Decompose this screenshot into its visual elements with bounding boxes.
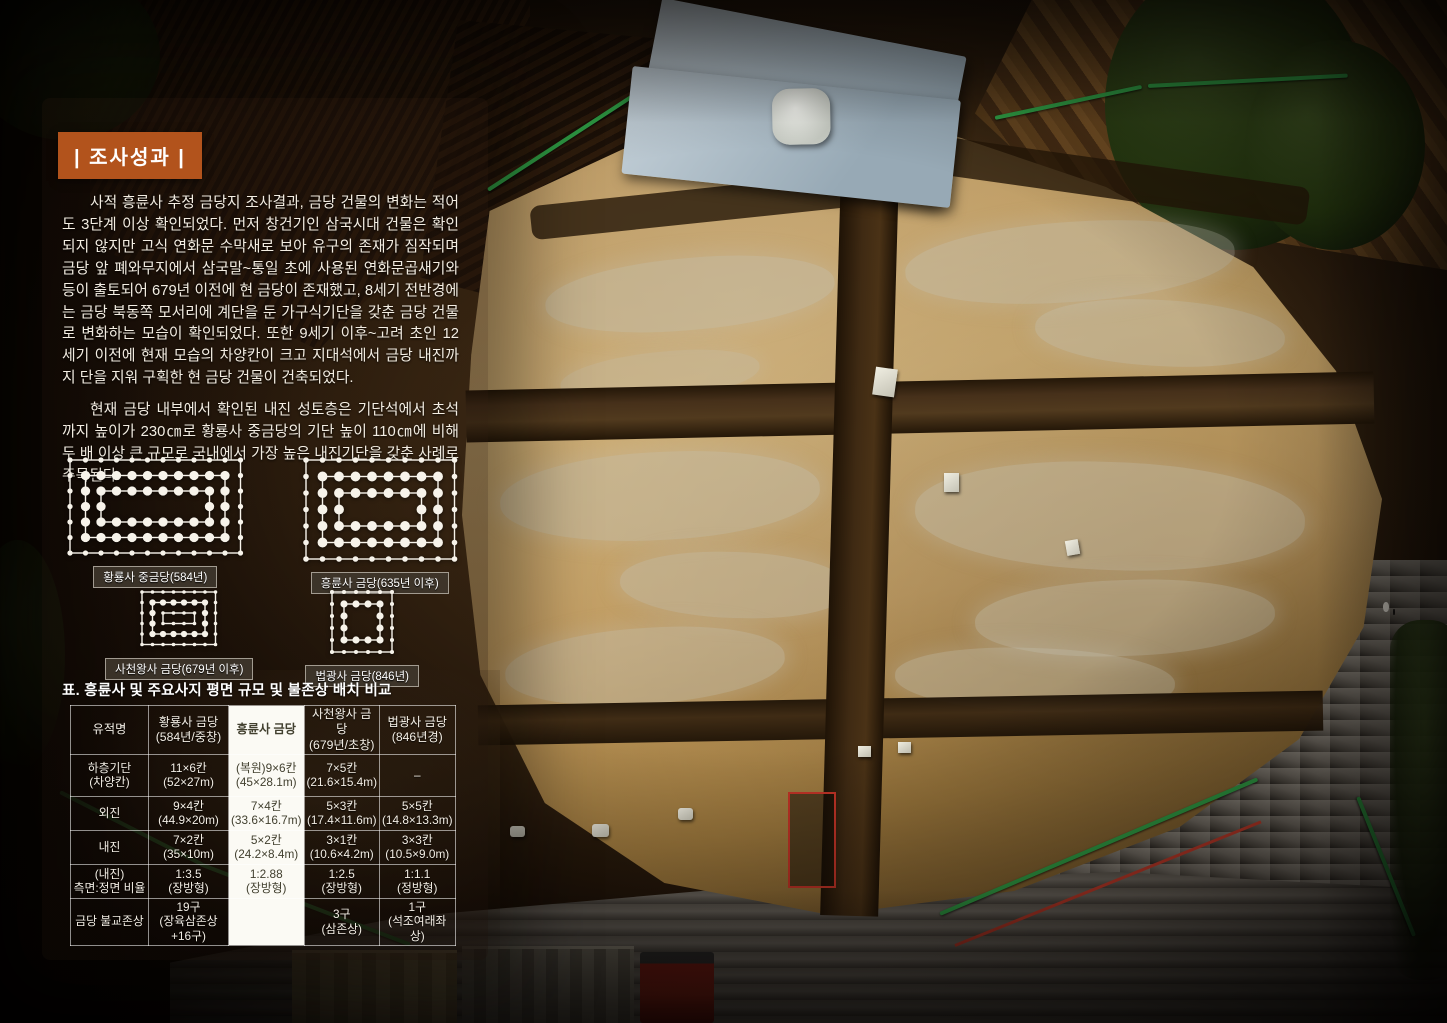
- cell-text: 황룡사 금당: [151, 715, 226, 730]
- cell-text: 7×5칸: [307, 761, 378, 776]
- table-cell: 1구(석조여래좌상): [380, 898, 456, 945]
- plan-diagrams-small: 사천왕사 금당(679년 이후) 법광사 금당(846년): [62, 584, 462, 687]
- section-title: | 조사성과 |: [58, 132, 202, 179]
- cell-text: –: [382, 768, 453, 783]
- cell-text: 7×4칸: [231, 799, 302, 814]
- cell-text: 측면:정면 비율: [73, 881, 146, 896]
- table-row: 금당 불교존상19구(장육삼존상+16구)3구(삼존상)1구(석조여래좌상): [71, 898, 456, 945]
- cell-text: 유적명: [73, 722, 146, 737]
- cell-text: 11×6칸: [151, 761, 226, 776]
- cell-text: (33.6×16.7m): [231, 813, 302, 828]
- hedge-row: [1390, 620, 1447, 980]
- table-row: 외진9×4칸(44.9×20m)7×4칸(33.6×16.7m)5×3칸(17.…: [71, 796, 456, 830]
- cell-text: (679년/초창): [307, 738, 378, 753]
- table-cell: 9×4칸(44.9×20m): [149, 796, 229, 830]
- table-cell: 1:2.88(장방형): [229, 864, 305, 898]
- cell-text: 3×3칸: [382, 833, 453, 848]
- stone-block: [1065, 539, 1080, 556]
- cell-text: 1:3.5: [151, 867, 226, 882]
- stone-block: [858, 746, 871, 757]
- cell-text: 법광사 금당: [382, 715, 453, 730]
- cell-text: (17.4×11.6m): [307, 813, 378, 828]
- cell-text: 7×2칸: [151, 833, 226, 848]
- cell-text: 사천왕사 금당: [307, 707, 378, 738]
- sandbag: [678, 808, 693, 820]
- plan-grid: [62, 452, 249, 561]
- marked-test-pit: [788, 792, 836, 888]
- cell-text: (석조여래좌상): [382, 914, 453, 943]
- cell-text: 1:1.1: [382, 867, 453, 882]
- cell-text: 3×1칸: [307, 833, 378, 848]
- cell-text: 5×5칸: [382, 799, 453, 814]
- row-header: (내진)측면:정면 비율: [71, 864, 149, 898]
- column-header: 법광사 금당(846년경): [380, 706, 456, 755]
- cell-text: (삼존상): [307, 922, 378, 937]
- table-cell: 7×4칸(33.6×16.7m): [229, 796, 305, 830]
- cell-text: 1:2.88: [231, 867, 302, 882]
- cell-text: 하층기단: [73, 761, 146, 776]
- cell-text: (장방형): [231, 881, 302, 896]
- cell-text: (정방형): [382, 881, 453, 896]
- stone-artifact: [772, 88, 831, 145]
- plan-diagram: 법광사 금당(846년): [305, 584, 419, 687]
- row-header: 하층기단(차양칸): [71, 754, 149, 796]
- plan-grid-svg: [62, 452, 249, 561]
- column-header: 흥륜사 금당: [229, 706, 305, 755]
- cell-text: 외진: [73, 806, 146, 821]
- row-header: 내진: [71, 830, 149, 864]
- plan-grid-svg: [298, 452, 463, 567]
- table-cell: 5×2칸(24.2×8.4m): [229, 830, 305, 864]
- plan-grid: [298, 452, 463, 567]
- cell-text: (846년경): [382, 730, 453, 745]
- cell-text: (10.6×4.2m): [307, 847, 378, 862]
- cell-text: (차양칸): [73, 775, 146, 790]
- cell-text: (44.9×20m): [151, 813, 226, 828]
- table-row: 내진7×2칸(35×10m)5×2칸(24.2×8.4m)3×1칸(10.6×4…: [71, 830, 456, 864]
- paragraph: 사적 흥륜사 추정 금당지 조사결과, 금당 건물의 변화는 적어도 3단계 이…: [62, 193, 459, 390]
- cell-text: (복원)9×6칸: [231, 761, 302, 776]
- table-cell: 5×5칸(14.8×13.3m): [380, 796, 456, 830]
- table-header: 유적명황룡사 금당(584년/중창)흥륜사 금당사천왕사 금당(679년/초창)…: [71, 706, 456, 755]
- table-header-row: 유적명황룡사 금당(584년/중창)흥륜사 금당사천왕사 금당(679년/초창)…: [71, 706, 456, 755]
- table-row: 하층기단(차양칸)11×6칸(52×27m)(복원)9×6칸(45×28.1m)…: [71, 754, 456, 796]
- cell-text: 금당 불교존상: [73, 914, 146, 929]
- table-cell: 1:3.5(장방형): [149, 864, 229, 898]
- table-cell: 3×1칸(10.6×4.2m): [304, 830, 380, 864]
- cell-text: 내진: [73, 840, 146, 855]
- red-truck: [640, 952, 714, 1023]
- plan-diagram: 사천왕사 금당(679년 이후): [105, 584, 253, 687]
- table-cell: –: [380, 754, 456, 796]
- cell-text: 5×2칸: [231, 833, 302, 848]
- cell-text: 1구: [382, 900, 453, 915]
- plan-diagram: 황룡사 중금당(584년): [62, 452, 249, 594]
- plan-grid-svg: [324, 584, 400, 660]
- cell-text: 5×3칸: [307, 799, 378, 814]
- plan-grid: [134, 584, 224, 653]
- table-cell: 1:2.5(장방형): [304, 864, 380, 898]
- table-cell: 5×3칸(17.4×11.6m): [304, 796, 380, 830]
- table-cell: 3×3칸(10.5×9.0m): [380, 830, 456, 864]
- cell-text: (584년/중창): [151, 730, 226, 745]
- table-caption: 표. 흥륜사 및 주요사지 평면 규모 및 불존상 배치 비교: [62, 679, 392, 700]
- table-body: 하층기단(차양칸)11×6칸(52×27m)(복원)9×6칸(45×28.1m)…: [71, 754, 456, 945]
- person: [1383, 602, 1389, 612]
- plan-label: 사천왕사 금당(679년 이후): [105, 658, 253, 680]
- cell-text: 9×4칸: [151, 799, 226, 814]
- table-row: (내진)측면:정면 비율1:3.5(장방형)1:2.88(장방형)1:2.5(장…: [71, 864, 456, 898]
- cell-text: (14.8×13.3m): [382, 813, 453, 828]
- cell-text: 19구: [151, 900, 226, 915]
- row-header: 금당 불교존상: [71, 898, 149, 945]
- plan-grid-svg: [134, 584, 224, 653]
- table-cell: 19구(장육삼존상+16구): [149, 898, 229, 945]
- comparison-table: 유적명황룡사 금당(584년/중창)흥륜사 금당사천왕사 금당(679년/초창)…: [70, 705, 456, 946]
- plan-diagram: 흥륜사 금당(635년 이후): [298, 452, 463, 594]
- cell-text: (장방형): [151, 881, 226, 896]
- cell-text: (21.6×15.4m): [307, 775, 378, 790]
- cell-text: (장방형): [307, 881, 378, 896]
- table-cell: 7×5칸(21.6×15.4m): [304, 754, 380, 796]
- cell-text: (24.2×8.4m): [231, 847, 302, 862]
- row-header: 외진: [71, 796, 149, 830]
- cell-text: (장육삼존상+16구): [151, 914, 226, 943]
- column-header: 유적명: [71, 706, 149, 755]
- stone-block: [944, 473, 959, 492]
- cell-text: 3구: [307, 907, 378, 922]
- cell-text: 1:2.5: [307, 867, 378, 882]
- plan-grid: [324, 584, 400, 660]
- plan-diagrams-large: 황룡사 중금당(584년) 흥륜사 금당(635년 이후): [62, 452, 462, 594]
- cell-text: (10.5×9.0m): [382, 847, 453, 862]
- cell-text: (52×27m): [151, 775, 226, 790]
- cell-text: 흥륜사 금당: [231, 722, 302, 737]
- cell-text: (45×28.1m): [231, 775, 302, 790]
- poster-page: | 조사성과 | 사적 흥륜사 추정 금당지 조사결과, 금당 건물의 변화는 …: [0, 0, 1447, 1023]
- sandbag: [592, 824, 609, 837]
- stone-block: [872, 367, 898, 398]
- table-cell: 3구(삼존상): [304, 898, 380, 945]
- column-header: 사천왕사 금당(679년/초창): [304, 706, 380, 755]
- table-cell: [229, 898, 305, 945]
- column-header: 황룡사 금당(584년/중창): [149, 706, 229, 755]
- sandbag: [510, 826, 525, 837]
- table-cell: 1:1.1(정방형): [380, 864, 456, 898]
- table-cell: 7×2칸(35×10m): [149, 830, 229, 864]
- stone-block: [898, 742, 911, 753]
- table-cell: 11×6칸(52×27m): [149, 754, 229, 796]
- cell-text: (35×10m): [151, 847, 226, 862]
- table-cell: (복원)9×6칸(45×28.1m): [229, 754, 305, 796]
- cell-text: (내진): [73, 867, 146, 882]
